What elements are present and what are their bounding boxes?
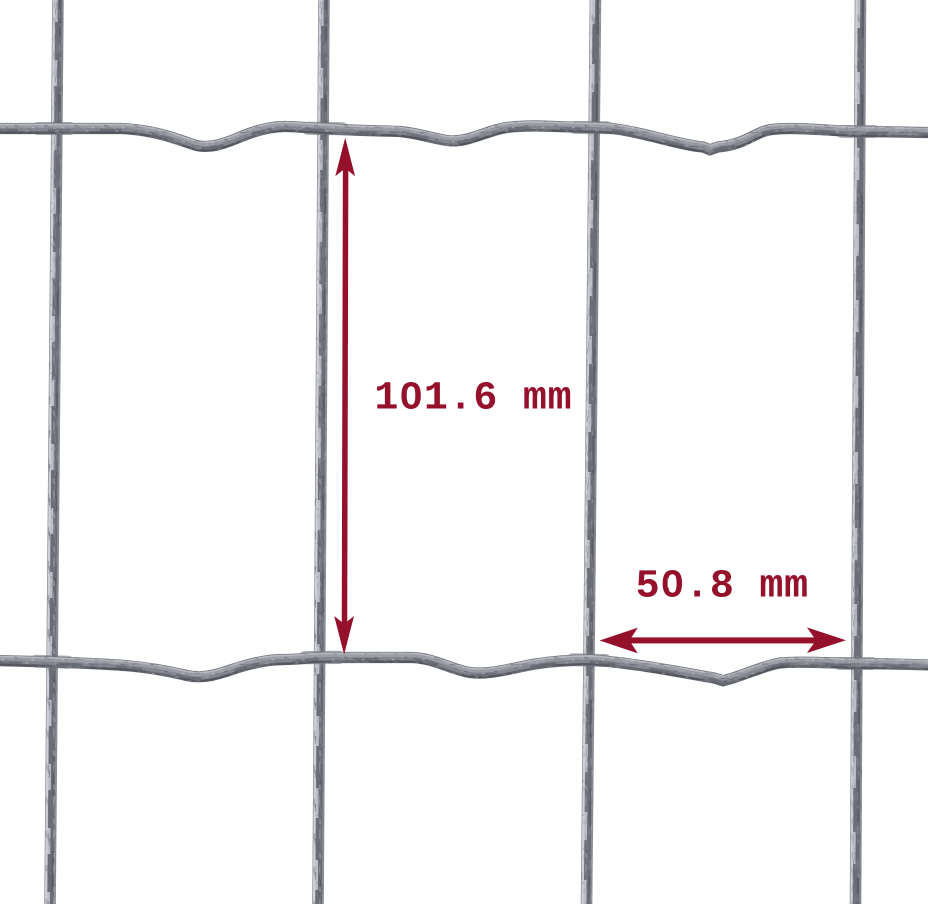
svg-text:50.8 mm: 50.8 mm bbox=[636, 565, 809, 610]
svg-text:101.6 mm: 101.6 mm bbox=[374, 377, 572, 422]
